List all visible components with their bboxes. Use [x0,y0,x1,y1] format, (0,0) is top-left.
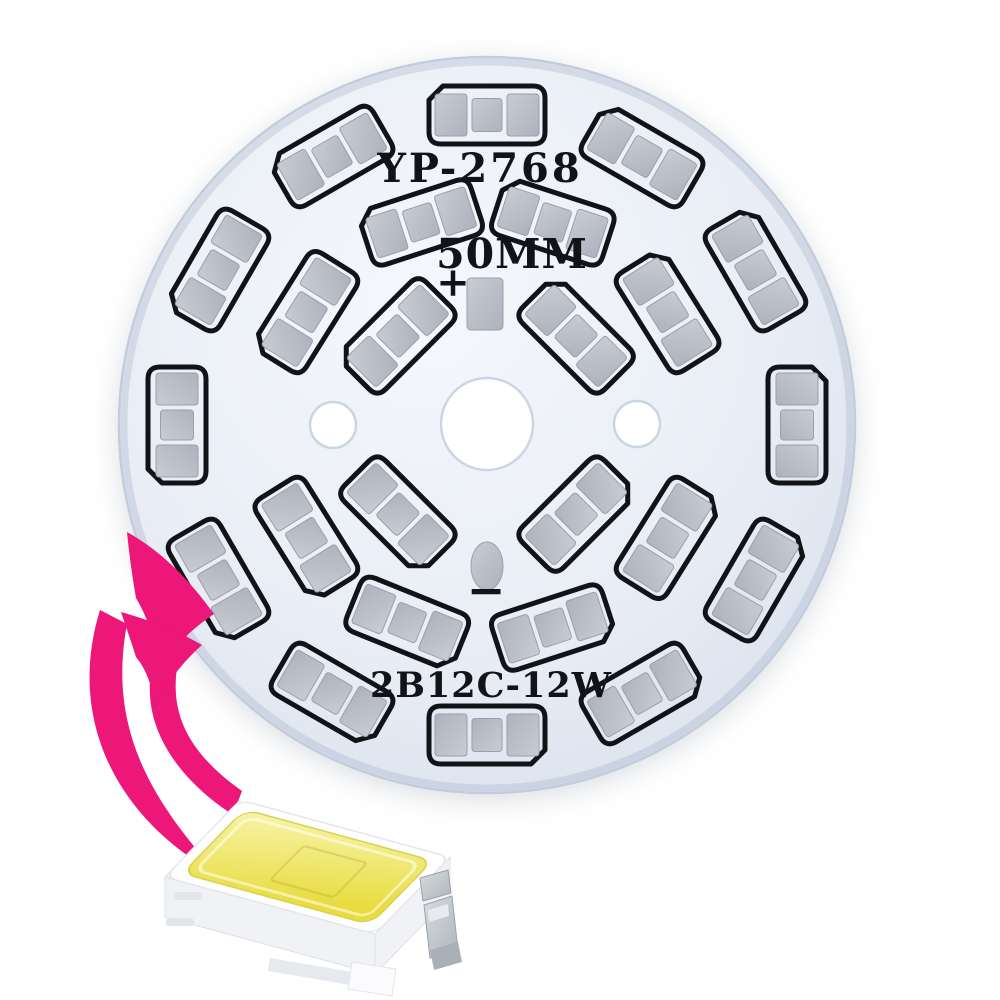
pcb-board: YP-2768 50MM + − 2B12C-12W [119,57,855,793]
led-pad [435,714,467,756]
silkscreen-spec-text: 2B12C-12W [370,665,612,706]
left-mounting-hole [310,402,356,448]
led-pad [507,94,539,136]
positive-solder-pad [467,278,503,330]
led-pad [435,94,467,136]
chip-side-slot [174,892,202,900]
led-pad [507,714,539,756]
led-pad [472,99,502,132]
silkscreen-model-text: YP-2768 [376,145,582,192]
led-pad [161,410,194,440]
led-pad [776,373,818,405]
led-pad [781,410,814,440]
led-pad [472,719,502,752]
product-photo: YP-2768 50MM + − 2B12C-12W [0,0,1000,1000]
led-pad [156,445,198,477]
smd-led-chip [165,800,462,996]
chip-bottom-tab [348,962,396,996]
silkscreen-plus-mark: + [436,259,470,306]
right-mounting-hole [614,401,660,447]
silkscreen-minus-mark: − [467,563,506,617]
led-pad [156,373,198,405]
led-pad [776,445,818,477]
led-solder-lead [420,870,462,970]
chip-side-slot [166,918,194,926]
center-hole [441,378,533,470]
